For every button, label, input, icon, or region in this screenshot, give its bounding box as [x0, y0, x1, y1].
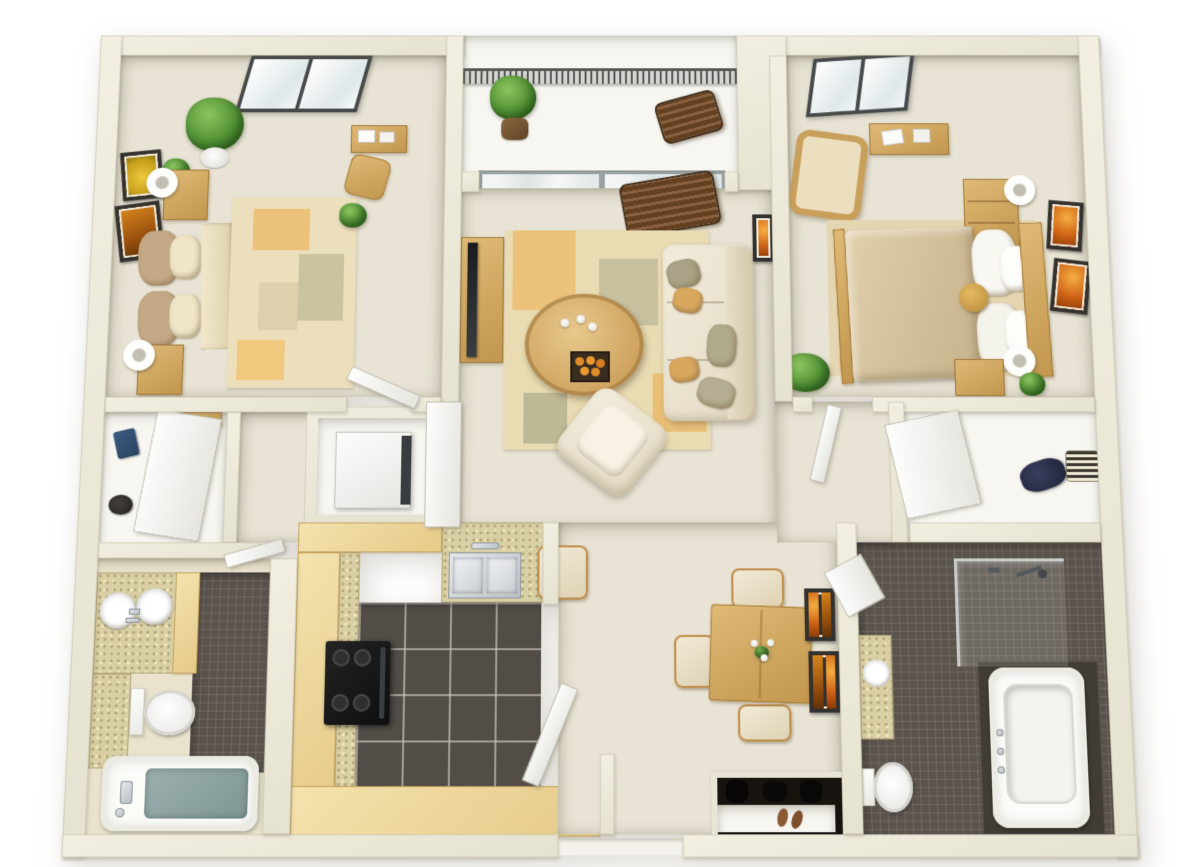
burner	[332, 649, 350, 666]
apartment-plan	[61, 36, 1138, 860]
sink	[862, 659, 890, 687]
vanity-counter-leg	[88, 674, 131, 769]
tub-fixture	[120, 781, 133, 804]
wall-outer-top-left	[100, 36, 464, 56]
wall-glassdoor-stub-right	[724, 171, 738, 192]
toilet	[143, 690, 196, 735]
balcony-bench	[653, 88, 725, 145]
fruit-tray	[570, 351, 610, 382]
wall-bedroom2-bottom-left	[793, 397, 813, 413]
coat	[763, 781, 788, 802]
art-double	[813, 655, 837, 708]
skylight-pane	[859, 56, 910, 110]
coat	[800, 780, 823, 803]
wall-outer-bottom-left	[61, 834, 558, 857]
tub-fixture-knob	[115, 808, 125, 817]
wall-art-frame	[804, 588, 835, 641]
art-orange	[1054, 262, 1087, 311]
dresser-drawer-line	[967, 200, 1014, 202]
dining-table	[709, 604, 813, 704]
skylight-icon	[806, 52, 915, 117]
dining-chair	[731, 568, 784, 608]
shoe-closet-floor	[718, 805, 836, 832]
tub-jet	[996, 729, 1003, 736]
faucet	[129, 609, 140, 615]
washer	[334, 432, 412, 509]
wall-kitchen-dining-stub	[542, 522, 559, 604]
entry-threshold	[559, 839, 683, 856]
table-lamp	[1004, 175, 1036, 205]
television	[466, 243, 477, 357]
rug-patch	[258, 282, 299, 330]
toilet-tank	[129, 688, 145, 735]
room-bathroom-2	[857, 542, 1115, 834]
storage-basket	[1065, 450, 1100, 481]
art-double	[808, 592, 831, 636]
bathroom-tile-floor	[189, 572, 270, 772]
rug-patch	[297, 254, 344, 321]
shower-valve	[987, 567, 999, 572]
tub-basin	[1003, 684, 1077, 804]
pillow	[169, 294, 201, 339]
wall-art-frame	[808, 651, 840, 712]
kitchen-cabinet-top	[298, 522, 442, 552]
plant-pot	[200, 147, 230, 167]
wall-entry-stub	[600, 754, 614, 834]
closet-door	[134, 410, 221, 541]
potted-plant	[185, 98, 245, 151]
folded-jeans	[113, 428, 140, 460]
tub-jet	[998, 766, 1005, 773]
small-plant	[339, 203, 367, 227]
desk-papers	[380, 133, 394, 142]
room-balcony	[462, 36, 738, 174]
room-bathroom-1	[85, 558, 270, 834]
art-amber	[813, 655, 824, 708]
door-laundry	[425, 403, 461, 527]
desk-papers	[359, 131, 375, 142]
shower-head-icon	[1038, 569, 1047, 578]
glass-pane	[482, 174, 599, 189]
room-closet	[99, 412, 227, 542]
desk-papers	[914, 130, 930, 142]
armchair-cushion	[572, 401, 653, 481]
wicker-chair	[787, 128, 869, 222]
toilet	[873, 762, 913, 812]
tub-jet	[997, 748, 1004, 755]
art-orange	[825, 655, 836, 708]
fruit	[586, 356, 595, 365]
small-plant	[1019, 373, 1046, 396]
clothing-pile	[1016, 454, 1070, 496]
burner	[331, 694, 349, 711]
bathtub	[988, 667, 1091, 828]
desk	[351, 125, 408, 153]
desk	[869, 123, 949, 154]
washer-side	[400, 436, 411, 505]
wall-glassdoor-stub-left	[462, 171, 480, 192]
fruit	[591, 368, 600, 377]
area-rug	[226, 198, 357, 388]
desk-chair	[342, 153, 393, 202]
burner	[354, 649, 372, 666]
wall-art-frame	[1050, 258, 1092, 315]
tub-mat	[144, 768, 249, 818]
room-bedroom-1	[106, 56, 447, 397]
plant-pot	[501, 118, 528, 140]
skylight-pane	[299, 59, 368, 108]
hat	[108, 495, 133, 515]
burner	[353, 694, 371, 711]
glass-shower	[954, 558, 1068, 666]
kitchen-double-sink	[448, 552, 521, 598]
candle	[561, 319, 570, 328]
pillow	[170, 235, 202, 280]
kitchen-cabinet-bottom	[290, 786, 600, 836]
room-bedroom-2	[786, 56, 1094, 397]
dining-chair	[738, 704, 792, 741]
wall-art-frame	[1046, 200, 1083, 252]
art-amber	[821, 592, 832, 636]
coat	[725, 780, 748, 803]
bathtub	[100, 756, 259, 831]
rug-patch	[252, 209, 310, 250]
oven-handle	[379, 647, 386, 719]
sink-basin	[487, 557, 518, 593]
wall-bedroom1-bottom	[105, 397, 347, 413]
faucet	[125, 618, 139, 623]
wall-outer-top-right	[736, 36, 1100, 56]
candle	[576, 315, 585, 324]
rug-patch	[236, 340, 285, 380]
art-orange	[756, 218, 770, 258]
fruit	[580, 367, 589, 376]
flower	[760, 654, 767, 661]
vanity-cabinet	[172, 572, 200, 673]
skylight-pane	[240, 59, 309, 108]
wall-bedroom2-bottom-right	[872, 397, 1095, 413]
sofa	[663, 245, 756, 422]
flower	[767, 639, 774, 646]
balcony-plant	[490, 76, 537, 120]
wall-outer-bottom-right	[683, 834, 1139, 857]
art-orange	[1050, 204, 1079, 248]
coffee-table	[525, 294, 644, 396]
kitchen-faucet	[471, 542, 499, 549]
vanity-counter	[859, 635, 894, 739]
candle	[588, 322, 597, 331]
slipper	[789, 809, 805, 830]
range-stove	[324, 641, 391, 725]
flower	[751, 640, 758, 647]
skylight-icon	[235, 56, 373, 113]
desk-papers	[882, 129, 903, 144]
wall-bath2-top	[909, 522, 1101, 542]
room-living	[457, 188, 777, 527]
slipper	[776, 807, 790, 828]
nightstand	[954, 359, 1005, 396]
floor-plan-stage	[0, 0, 1200, 867]
sofa-pillow	[705, 323, 737, 367]
sink-basin	[452, 557, 483, 593]
art-orange	[808, 592, 818, 636]
fruit	[596, 359, 605, 368]
fruit	[575, 357, 584, 366]
skylight-pane	[810, 59, 861, 113]
